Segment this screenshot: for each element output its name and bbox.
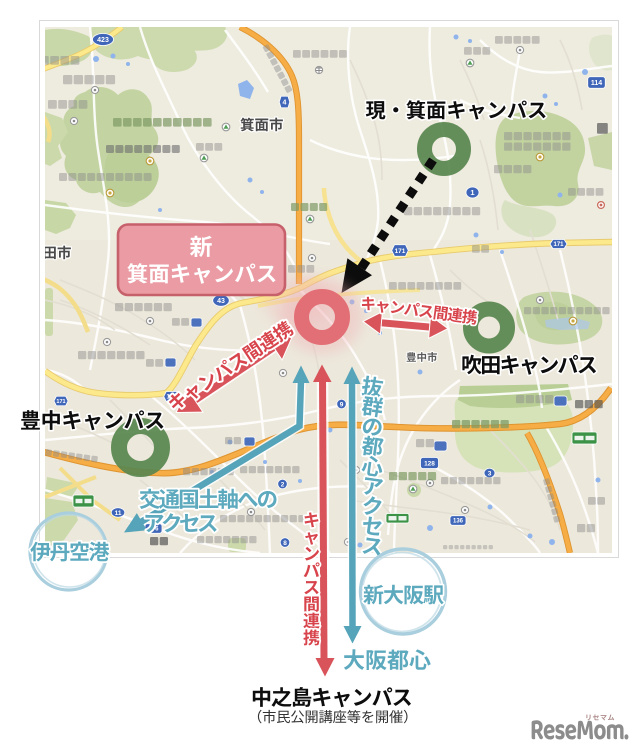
svg-text:171: 171 xyxy=(553,242,564,248)
svg-text:8: 8 xyxy=(283,540,287,547)
svg-text:3: 3 xyxy=(488,470,492,477)
svg-text:11: 11 xyxy=(115,510,122,517)
svg-text:423: 423 xyxy=(97,37,109,44)
svg-text:114: 114 xyxy=(591,80,602,87)
svg-text:4: 4 xyxy=(283,100,287,107)
svg-text:136: 136 xyxy=(453,519,464,525)
svg-text:171: 171 xyxy=(395,248,406,255)
svg-text:2: 2 xyxy=(281,481,285,488)
svg-text:43: 43 xyxy=(217,298,225,305)
svg-text:9: 9 xyxy=(340,401,344,408)
svg-text:1: 1 xyxy=(470,188,474,197)
svg-text:171: 171 xyxy=(56,399,65,405)
svg-text:128: 128 xyxy=(424,460,435,467)
